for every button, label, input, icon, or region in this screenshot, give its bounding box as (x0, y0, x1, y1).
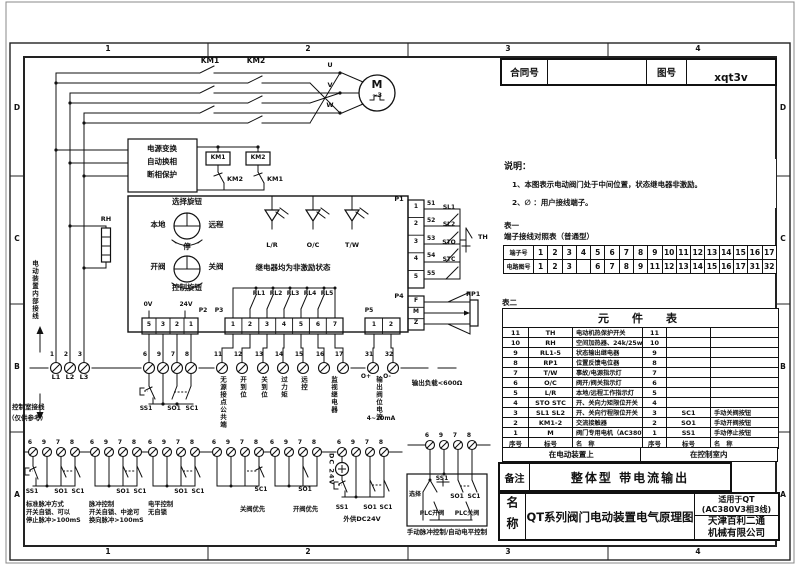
applicable-line2: (AC380V3相3线) (702, 505, 771, 515)
table-cell (711, 338, 779, 348)
table-cell (711, 368, 779, 378)
table-cell: 7 (643, 368, 667, 378)
table-cell: 10 (662, 246, 676, 260)
table-cell: 位置反馈电位器 (573, 358, 643, 368)
table-cell: 电动机热保护开关 (573, 328, 643, 338)
table-cell: 空间加热器、24k/25w (573, 338, 643, 348)
table-cell: 32 (762, 260, 777, 274)
table-row: 9RL1-5状态输出继电器9 (503, 348, 779, 358)
name-right-column: 适用于QT (AC380V3相3线) 天津百利二通 机械有限公司 (694, 494, 778, 539)
km1-coil (206, 152, 230, 165)
table-cell: 本地/远程工作指示灯 (573, 388, 643, 398)
table-row: 端子号1234567891011121314151617 (504, 246, 777, 260)
table1-caption: 表一 (504, 220, 519, 231)
table-cell: SO1 (667, 418, 711, 428)
drawing-no-cell: xqt3v (687, 60, 775, 84)
table-cell: SL1 SL2 (529, 408, 573, 418)
table-cell: 事故/电源指示灯 (573, 368, 643, 378)
table-cell: 13 (705, 246, 719, 260)
table-cell: 8 (633, 246, 647, 260)
p1-connector (408, 200, 424, 288)
table-cell (711, 398, 779, 408)
company-line2: 机械有限公司 (708, 528, 765, 539)
table-cell (711, 328, 779, 338)
table-cell: T/W (529, 368, 573, 378)
table-cell: 11 (676, 246, 690, 260)
table-cell: 4 (576, 246, 590, 260)
component-table-footer: 在电动装置上 在控制室内 (502, 447, 778, 462)
table-cell: 16 (719, 260, 733, 274)
table-cell: 9 (643, 348, 667, 358)
table-row: 5L/R本地/远程工作指示灯5 (503, 388, 779, 398)
table-cell: 3 (643, 408, 667, 418)
table-cell (667, 338, 711, 348)
drawing-no-value: xqt3v (714, 72, 747, 84)
table-row: 6O/C阀开/阀关指示灯6 (503, 378, 779, 388)
table-cell (667, 368, 711, 378)
user-terminals (29, 363, 477, 457)
table-cell: 9 (648, 246, 662, 260)
table-row: 1M阀门专用电机（AC380V）1SS1手动停止按钮 (503, 428, 779, 438)
drawing-sheet: 12341234DCBADCBAKM1KM2UVWM~3电源变换自动换相断相保护… (0, 0, 800, 566)
rh-heater-resistor (102, 228, 111, 262)
table-cell (711, 348, 779, 358)
table-cell: L/R (529, 388, 573, 398)
table-cell: 开、关向行程限位开关 (573, 408, 643, 418)
table-row: 3SL1 SL2开、关向行程限位开关3SC1手动关阀按钮 (503, 408, 779, 418)
table-cell: 6 (643, 378, 667, 388)
table-cell: SS1 (667, 428, 711, 438)
table-cell: 31 (748, 260, 762, 274)
table-cell: 17 (762, 246, 777, 260)
table-row: 电路图号1236789111213141516173132 (504, 260, 777, 274)
notes-section: 说明： 1、本图表示电动阀门处于中间位置，状态继电器非激励。 2、∅ ：用户接线… (504, 159, 776, 208)
table-cell: 交流接触器 (573, 418, 643, 428)
table-cell: 7 (619, 246, 633, 260)
table-cell (576, 260, 590, 274)
km2-coil (246, 152, 270, 165)
contract-no-label: 合同号 (502, 60, 548, 84)
remark-label: 备注 (500, 464, 530, 490)
table-cell: 2 (643, 418, 667, 428)
footer-in-control-room: 在控制室内 (641, 448, 778, 461)
table-cell: 端子号 (504, 246, 534, 260)
table-cell: 1 (534, 260, 548, 274)
table-cell (667, 388, 711, 398)
table-row: 7T/W事故/电源指示灯7 (503, 368, 779, 378)
table-cell: 1 (534, 246, 548, 260)
junction-dots (37, 71, 471, 498)
component-table-title: 元 件 表 (503, 309, 779, 328)
table-cell: 3 (562, 246, 576, 260)
table-cell: RP1 (529, 358, 573, 368)
table-cell (711, 378, 779, 388)
table-cell: 手动停止按钮 (711, 428, 779, 438)
table-cell (667, 328, 711, 338)
table-cell: 5 (503, 388, 529, 398)
control-unit-box (128, 196, 408, 332)
drawing-title: QT系列阀门电动装置电气原理图 (526, 494, 694, 539)
table1-subtitle: 端子接线对照表（普通型） (504, 231, 594, 242)
remark-text: 整体型 带电流输出 (530, 464, 730, 490)
table-cell: M (529, 428, 573, 438)
terminal-mapping-table: 端子号1234567891011121314151617电路图号12367891… (503, 245, 777, 274)
table-cell: 2 (548, 260, 562, 274)
table-cell (667, 358, 711, 368)
table-cell: 4 (503, 398, 529, 408)
component-table-title-row: 元 件 表 (503, 309, 779, 328)
table-cell (711, 358, 779, 368)
table-cell: 14 (691, 260, 705, 274)
table-cell: 5 (643, 388, 667, 398)
table-cell: 3 (562, 260, 576, 274)
p4-connector (408, 296, 424, 330)
table-row: 2KM1-2交流接触器2SO1手动开阀按钮 (503, 418, 779, 428)
rp1-potentiometer (470, 300, 478, 326)
table-cell: 15 (733, 246, 747, 260)
table-cell: RH (529, 338, 573, 348)
table-cell: RL1-5 (529, 348, 573, 358)
notes-heading: 说明： (504, 159, 776, 172)
table-cell (667, 378, 711, 388)
note-line-2: 2、∅ ：用户接线端子。 (512, 197, 776, 208)
table-cell: 13 (676, 260, 690, 274)
motor-symbol (359, 75, 395, 111)
table-cell: 6 (605, 246, 619, 260)
table-cell: 1 (643, 428, 667, 438)
table-cell: O/C (529, 378, 573, 388)
table-cell: 8 (619, 260, 633, 274)
table-cell: TH (529, 328, 573, 338)
table-cell: 12 (691, 246, 705, 260)
table-cell: 17 (733, 260, 747, 274)
led-symbols (265, 210, 359, 221)
table-row: 11TH电动机热保护开关11 (503, 328, 779, 338)
table-cell: 11 (503, 328, 529, 338)
table-cell: 开、关向力矩限位开关 (573, 398, 643, 408)
table-cell: 10 (503, 338, 529, 348)
name-label: 名称 (500, 494, 526, 539)
table-cell: 8 (643, 358, 667, 368)
table-row: 8RP1位置反馈电位器8 (503, 358, 779, 368)
component-boxes (102, 75, 488, 526)
table-cell: 6 (591, 260, 605, 274)
remark-block: 备注 整体型 带电流输出 (498, 462, 732, 492)
table-cell: SC1 (667, 408, 711, 418)
company-name: 天津百利二通 机械有限公司 (695, 516, 778, 539)
applicable-line1: 适用于QT (718, 495, 754, 505)
table2-caption: 表二 (502, 297, 517, 308)
title-block: 合同号 图号 xqt3v (500, 58, 777, 86)
table-cell: 12 (662, 260, 676, 274)
table-cell: 9 (503, 348, 529, 358)
table-cell: 3 (503, 408, 529, 418)
table-cell: 电路图号 (504, 260, 534, 274)
table-row: 4STO STC开、关向力矩限位开关4 (503, 398, 779, 408)
name-block: 名称 QT系列阀门电动装置电气原理图 适用于QT (AC380V3相3线) 天津… (498, 492, 780, 541)
table-row: 10RH空间加热器、24k/25w10 (503, 338, 779, 348)
table-cell: KM1-2 (529, 418, 573, 428)
drawing-no-label: 图号 (647, 60, 687, 84)
table-cell: 8 (503, 358, 529, 368)
table-cell (667, 348, 711, 358)
table-cell: 5 (591, 246, 605, 260)
power-conversion-box (128, 139, 197, 192)
applicable-model: 适用于QT (AC380V3相3线) (695, 494, 778, 516)
table-cell: 16 (748, 246, 762, 260)
note-line-1: 1、本图表示电动阀门处于中间位置，状态继电器非激励。 (512, 179, 776, 190)
table-cell: 11 (648, 260, 662, 274)
table-cell: 手动开阀按钮 (711, 418, 779, 428)
table-cell (711, 388, 779, 398)
table-cell: 2 (503, 418, 529, 428)
table-cell: 11 (643, 328, 667, 338)
table-cell: 阀开/阀关指示灯 (573, 378, 643, 388)
table-cell: 7 (503, 368, 529, 378)
table-cell: 4 (643, 398, 667, 408)
table-cell: 10 (643, 338, 667, 348)
component-table: 元 件 表 11TH电动机热保护开关1110RH空间加热器、24k/25w109… (502, 308, 779, 449)
company-line1: 天津百利二通 (708, 516, 765, 527)
footer-on-actuator: 在电动装置上 (503, 448, 641, 461)
table-cell: 2 (548, 246, 562, 260)
table-cell: STO STC (529, 398, 573, 408)
table-cell: 9 (633, 260, 647, 274)
table-cell: 手动关阀按钮 (711, 408, 779, 418)
table-cell: 14 (719, 246, 733, 260)
contract-no-value (548, 60, 647, 84)
table-cell: 7 (605, 260, 619, 274)
table-cell: 1 (503, 428, 529, 438)
table-cell: 状态输出继电器 (573, 348, 643, 358)
table-cell (667, 398, 711, 408)
table-cell: 15 (705, 260, 719, 274)
table-cell: 6 (503, 378, 529, 388)
table-cell: 阀门专用电机（AC380V） (573, 428, 643, 438)
